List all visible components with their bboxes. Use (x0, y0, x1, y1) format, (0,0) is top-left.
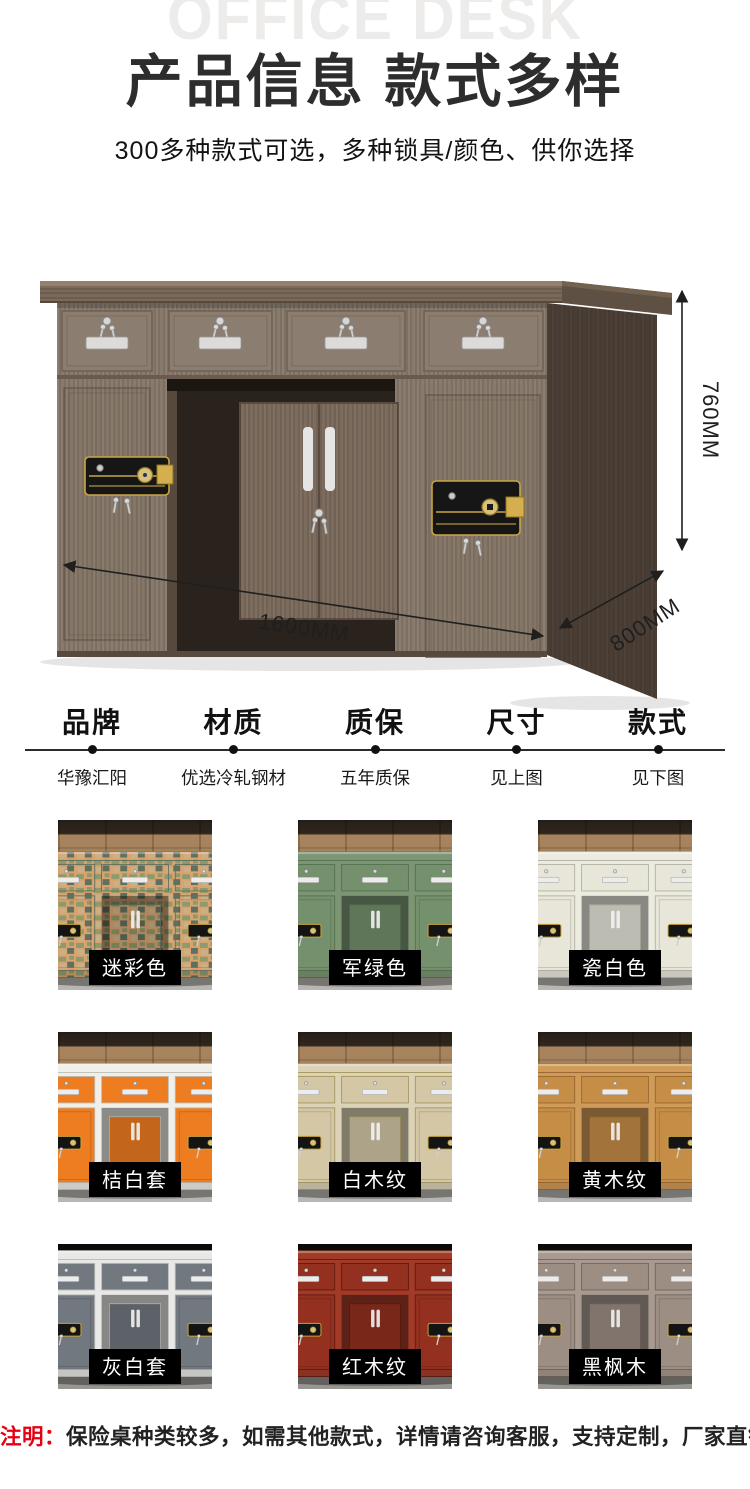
right-pedestal (426, 395, 540, 657)
spec-dot (88, 745, 97, 754)
spec-style: 款式 见下图 (591, 700, 725, 796)
spec-header: 款式 (591, 700, 725, 743)
style-option-yellow-woodgrain: 黄木纹 (538, 1032, 692, 1202)
spec-material: 材质 优选冷轧钢材 (167, 700, 301, 796)
spec-header: 材质 (167, 700, 301, 743)
dimension-height-label: 760MM (698, 381, 723, 459)
spec-warranty: 质保 五年质保 (308, 700, 442, 796)
spec-value: 见下图 (591, 765, 725, 790)
spec-dot (654, 745, 663, 754)
page-subtitle: 300多种款式可选，多种锁具/颜色、供你选择 (0, 131, 750, 167)
spec-header: 质保 (308, 700, 442, 743)
style-option-orange-white: 桔白套 (58, 1032, 212, 1202)
product-detail-page: OFFICE DESK 产品信息 款式多样 300多种款式可选，多种锁具/颜色、… (0, 0, 750, 1489)
style-option-white-woodgrain: 白木纹 (298, 1032, 452, 1202)
style-label: 黑枫木 (569, 1349, 661, 1384)
spec-value: 五年质保 (308, 765, 442, 790)
spec-value: 优选冷轧钢材 (167, 765, 301, 790)
style-option-black-maple: 黑枫木 (538, 1244, 692, 1389)
style-option-gray-white: 灰白套 (58, 1244, 212, 1389)
spec-dot (229, 745, 238, 754)
style-option-army-green: 军绿色 (298, 820, 452, 990)
footnote: 注明：保险桌种类较多，如需其他款式，详情请咨询客服，支持定制，厂家直销 (0, 1420, 750, 1451)
style-label: 迷彩色 (89, 950, 181, 985)
style-label: 桔白套 (89, 1162, 181, 1197)
style-option-red-woodgrain: 红木纹 (298, 1244, 452, 1389)
dimension-height: 760MM (682, 291, 723, 550)
style-label: 红木纹 (329, 1349, 421, 1384)
product-hero-image: 760MM 1600MM 800MM (0, 215, 750, 715)
page-title: 产品信息 款式多样 (0, 36, 750, 118)
spec-dot (512, 745, 521, 754)
spec-header: 品牌 (25, 700, 159, 743)
style-label: 白木纹 (329, 1162, 421, 1197)
spec-value: 见上图 (450, 765, 584, 790)
center-cabinet (240, 403, 398, 619)
style-label: 灰白套 (89, 1349, 181, 1384)
footnote-prefix: 注明： (0, 1425, 66, 1449)
spec-value: 华豫汇阳 (25, 765, 159, 790)
spec-strip: 品牌 华豫汇阳 材质 优选冷轧钢材 质保 五年质保 尺寸 见上图 款式 (25, 700, 725, 796)
desk-drawers (62, 311, 543, 371)
footnote-text: 保险桌种类较多，如需其他款式，详情请咨询客服，支持定制，厂家直销 (66, 1425, 750, 1449)
style-option-camouflage: 迷彩色 (58, 820, 212, 990)
style-label: 黄木纹 (569, 1162, 661, 1197)
spec-header: 尺寸 (450, 700, 584, 743)
style-option-porcelain-white: 瓷白色 (538, 820, 692, 990)
spec-size: 尺寸 见上图 (450, 700, 584, 796)
spec-dot (371, 745, 380, 754)
style-label: 军绿色 (329, 950, 421, 985)
style-label: 瓷白色 (569, 950, 661, 985)
style-grid: 迷彩色 军绿色 瓷白色 桔白套 白木纹 黄木纹 (18, 804, 732, 1405)
spec-brand: 品牌 华豫汇阳 (25, 700, 159, 796)
